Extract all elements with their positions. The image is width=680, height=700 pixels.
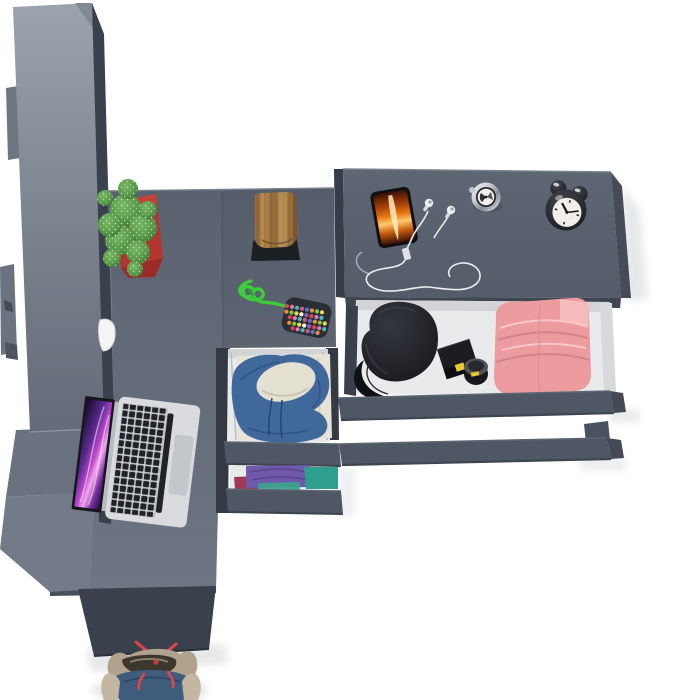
bead <box>292 322 296 326</box>
bead <box>289 310 293 314</box>
bead <box>305 308 309 312</box>
bead <box>285 304 289 308</box>
compass-crown <box>469 187 475 193</box>
bead <box>301 328 305 332</box>
bead <box>299 312 303 316</box>
bead <box>300 307 304 311</box>
wooden-stump <box>251 192 300 261</box>
bead <box>288 315 292 319</box>
bead <box>322 327 326 331</box>
bead <box>314 315 318 319</box>
folded-clothes-drawer2 <box>230 465 338 490</box>
bead <box>284 310 288 314</box>
container-top <box>468 361 484 372</box>
bead <box>297 323 301 327</box>
laptop <box>71 392 201 528</box>
sneaker-lace-cross <box>153 659 158 664</box>
pink-clothes <box>494 298 591 394</box>
bead <box>294 311 298 315</box>
bead <box>313 320 317 324</box>
bead <box>303 318 307 322</box>
bead <box>316 331 320 335</box>
bead <box>306 329 310 333</box>
bead <box>312 325 316 329</box>
bead <box>296 327 300 331</box>
bead <box>309 314 313 318</box>
bead <box>295 306 299 310</box>
bead <box>320 310 324 314</box>
bead <box>310 308 314 312</box>
drawer1-front <box>224 442 341 466</box>
teal-clothes-2 <box>258 482 300 490</box>
middle-drawer-unit <box>216 348 343 514</box>
scene-canvas <box>0 0 680 700</box>
bead <box>323 321 327 325</box>
bead <box>319 316 323 320</box>
sneaker-vamp <box>113 670 191 700</box>
bead <box>287 321 291 325</box>
bead <box>315 309 319 313</box>
round-container <box>464 359 488 386</box>
bead <box>298 317 302 321</box>
bead <box>290 305 294 309</box>
drawer2-front <box>226 489 343 514</box>
bead <box>304 313 308 317</box>
bead <box>291 326 295 330</box>
desk-bottom-panel <box>78 586 216 656</box>
bead <box>307 324 311 328</box>
bead <box>293 316 297 320</box>
bead <box>302 323 306 327</box>
bead <box>311 330 315 334</box>
sneaker-side-left <box>101 673 120 700</box>
bead <box>317 326 321 330</box>
sneaker-side-right <box>182 673 201 700</box>
compass-pivot <box>485 196 488 199</box>
teal-clothes <box>304 467 338 489</box>
furniture-render-scene <box>0 0 680 700</box>
bead <box>318 321 322 325</box>
bead <box>308 319 312 323</box>
hoodie <box>232 354 332 443</box>
